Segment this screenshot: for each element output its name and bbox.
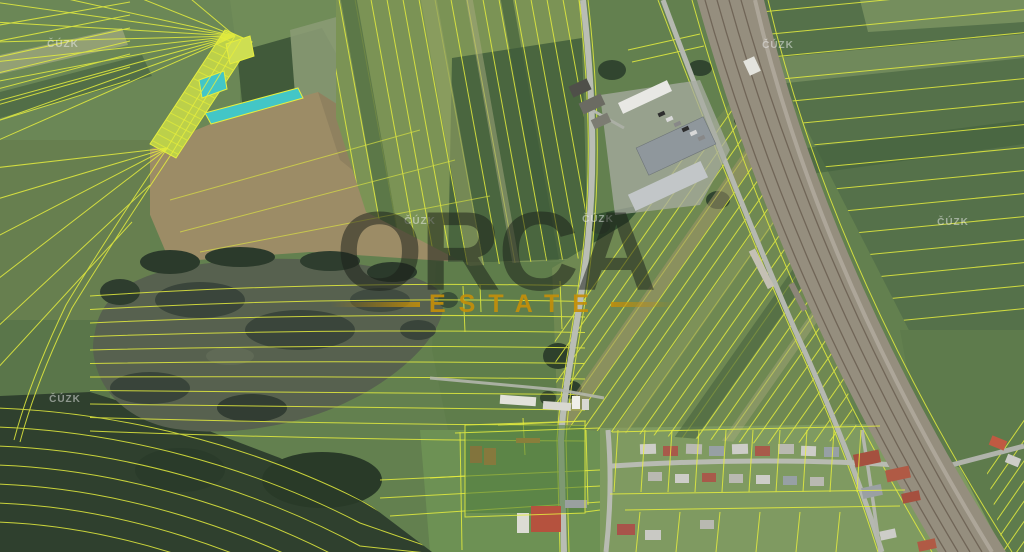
red-roof-building — [531, 506, 561, 532]
cuzk-watermark: ČÚZK — [937, 215, 969, 228]
cuzk-watermark: ČÚZK — [762, 38, 794, 51]
brand-rule-right — [611, 302, 675, 307]
brand-watermark-row: ESTATE — [330, 290, 686, 319]
brand-rule-left — [330, 302, 420, 307]
brand-watermark-estate: ESTATE — [429, 290, 602, 319]
cuzk-watermark: ČÚZK — [47, 37, 79, 50]
cuzk-watermark: ČÚZK — [49, 392, 81, 405]
map-viewport[interactable]: ČÚZK ČÚZK ČÚZK ČÚZK ČÚZK ČÚZK ORCA ESTAT… — [0, 0, 1024, 552]
green-pitch — [465, 425, 585, 513]
